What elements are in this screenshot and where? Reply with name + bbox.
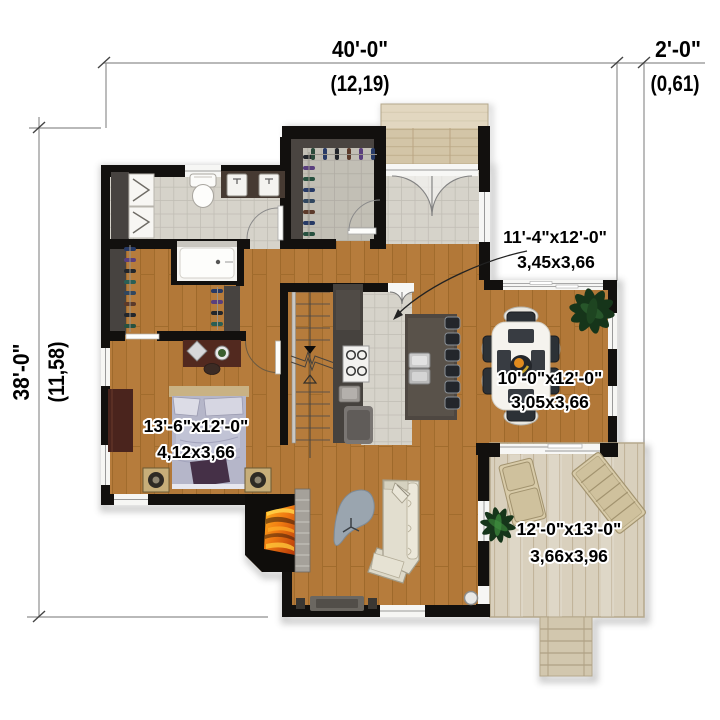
svg-text:2'-0": 2'-0" (655, 36, 701, 62)
svg-text:3,45x3,66: 3,45x3,66 (517, 252, 595, 272)
svg-text:3,66x3,96: 3,66x3,96 (530, 546, 608, 566)
svg-text:38'-0": 38'-0" (8, 344, 34, 401)
svg-text:3,05x3,66: 3,05x3,66 (511, 392, 589, 412)
svg-text:10'-0"x12'-0": 10'-0"x12'-0" (498, 368, 603, 388)
svg-text:(11,58): (11,58) (44, 342, 69, 403)
svg-text:11'-4"x12'-0": 11'-4"x12'-0" (503, 227, 607, 247)
svg-text:4,12x3,66: 4,12x3,66 (157, 442, 235, 462)
svg-text:13'-6"x12'-0": 13'-6"x12'-0" (144, 416, 249, 436)
svg-text:40'-0": 40'-0" (332, 36, 388, 62)
svg-text:(12,19): (12,19) (331, 71, 390, 96)
svg-text:(0,61): (0,61) (651, 71, 700, 96)
svg-text:12'-0"x13'-0": 12'-0"x13'-0" (517, 519, 622, 539)
